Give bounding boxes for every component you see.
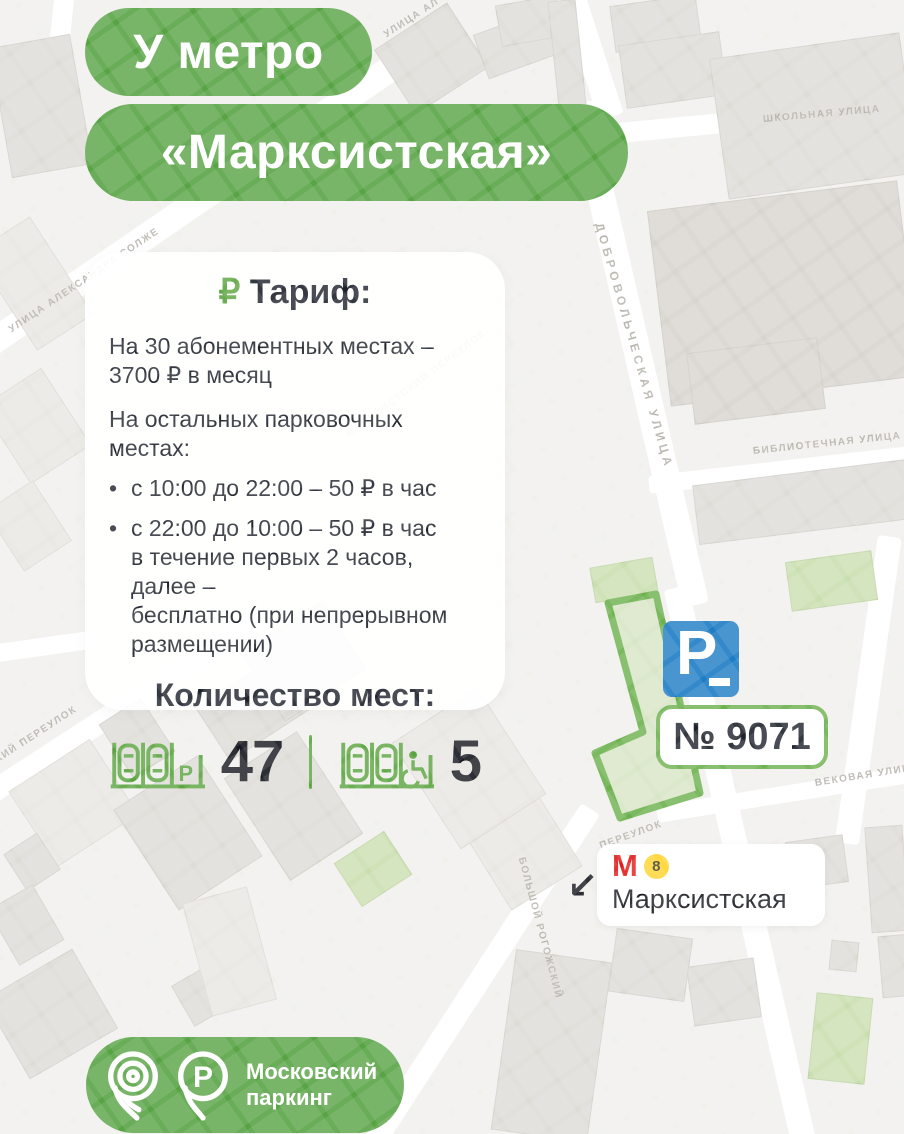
tariff-title-text: Тариф:: [250, 273, 372, 311]
bullet2-line2: в течение первых 2 часов, далее –: [131, 544, 413, 599]
building: [864, 825, 904, 933]
bullet2-line1: с 22:00 до 10:00 – 50 ₽ в час: [131, 515, 436, 541]
bullet1-text: с 10:00 до 22:00 – 50 ₽ в час: [131, 474, 436, 503]
building: [0, 884, 65, 965]
tariff-line2: На остальных парковочных местах:: [109, 405, 481, 463]
parking-infographic-poster: УЛИЦА АЛЕКСАНДРА СОЛЖЕ УЛИЦА АЛ ШКОЛЬНАЯ…: [0, 0, 904, 1134]
building: [374, 3, 489, 115]
building: [0, 34, 93, 178]
rouble-icon: ₽: [219, 273, 241, 311]
tariff-title: ₽ Тариф:: [109, 272, 481, 312]
building: [877, 934, 904, 999]
metro-station-name: Марксистская: [612, 884, 825, 915]
building: [686, 958, 762, 1027]
brand-line1: Московский: [246, 1059, 377, 1084]
parking-sign-underscore: [709, 678, 730, 686]
capacity-row: P 47 5: [109, 728, 481, 795]
capacity-title: Количество мест:: [109, 677, 481, 714]
parking-stalls-icon: P: [109, 731, 207, 793]
metro-direction-arrow-icon: ↙: [567, 864, 598, 907]
capacity-divider: [309, 735, 312, 789]
line-8-badge: 8: [644, 854, 669, 879]
footer-brand-badge: P Московский паркинг: [86, 1037, 404, 1133]
bullet-icon: •: [109, 514, 131, 659]
building: [0, 368, 91, 484]
metro-station-label: М 8 Марксистская: [597, 844, 825, 926]
building: [0, 480, 72, 571]
header-badge-line2: «Марксистская»: [85, 104, 628, 201]
parking-number-label: № 9071: [656, 705, 828, 769]
parking-logo-letter: P: [193, 1061, 213, 1094]
tariff-line1b: 3700 ₽ в месяц: [109, 362, 272, 388]
brand-line2: паркинг: [246, 1085, 332, 1110]
moscow-transport-logo-icon: [102, 1047, 164, 1123]
building: [829, 940, 860, 973]
header-badge-line1: У метро: [85, 8, 372, 96]
header-badge-line1-text: У метро: [133, 25, 323, 80]
wheelchair-icon: [402, 751, 426, 787]
building: [608, 928, 693, 1002]
tariff-bullet-2: • с 22:00 до 10:00 – 50 ₽ в час в течени…: [109, 514, 481, 659]
disabled-parking-stalls-icon: [338, 731, 436, 793]
bullet2-line3: бесплатно (при непрерывном: [131, 602, 447, 628]
brand-text: Московский паркинг: [246, 1059, 377, 1111]
stall-p-letter: P: [179, 761, 194, 786]
total-spaces-count: 47: [221, 728, 284, 795]
park-area: [785, 550, 878, 612]
tariff-line1a: На 30 абонементных местах –: [109, 333, 434, 359]
metro-logo-row: М 8: [612, 851, 825, 881]
moscow-parking-logo-icon: P: [172, 1047, 234, 1123]
bullet2-text: с 22:00 до 10:00 – 50 ₽ в час в течение …: [131, 514, 481, 659]
header-badge-line2-text: «Марксистская»: [161, 125, 553, 180]
building: [686, 337, 826, 425]
tariff-line: На 30 абонементных местах – 3700 ₽ в мес…: [109, 332, 481, 390]
tariff-bullet-1: • с 10:00 до 22:00 – 50 ₽ в час: [109, 474, 481, 503]
tariff-card: ₽ Тариф: На 30 абонементных местах – 370…: [85, 252, 505, 710]
disabled-spaces-count: 5: [450, 728, 481, 795]
park-area: [808, 992, 874, 1084]
bullet-icon: •: [109, 474, 131, 503]
parking-sign-icon: P: [663, 621, 739, 697]
parking-number-text: № 9071: [673, 716, 810, 759]
metro-logo: М: [612, 852, 638, 880]
park-area: [589, 557, 658, 604]
bullet2-line4: размещении): [131, 631, 273, 657]
